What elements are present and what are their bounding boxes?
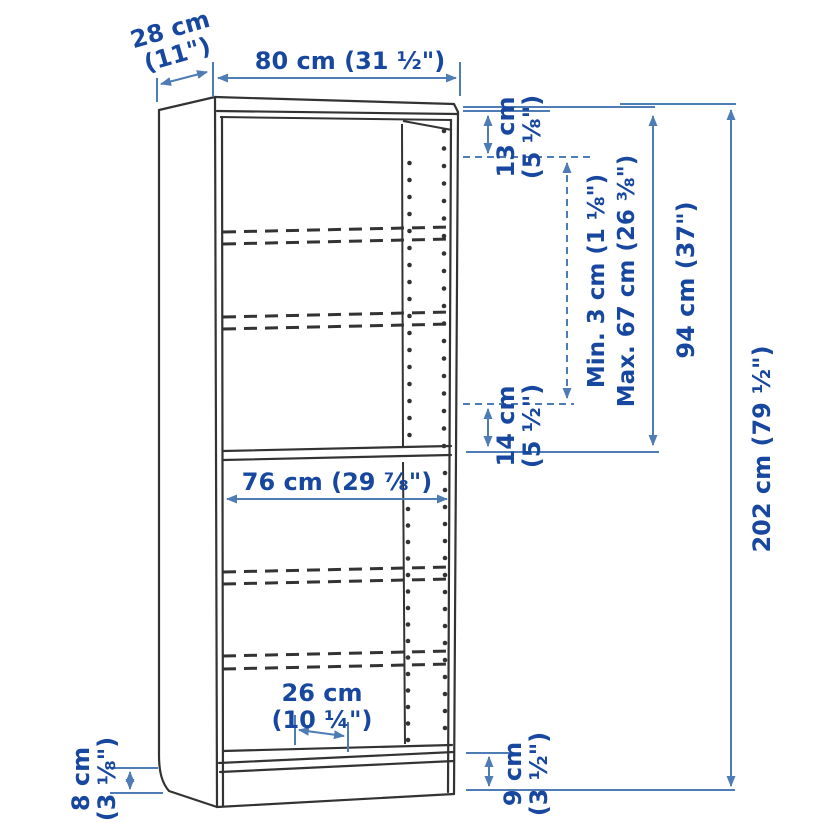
front-left-corner-edge (215, 97, 217, 807)
peg-hole-dot (406, 573, 411, 578)
peg-hole-dot (407, 314, 412, 319)
top-offset-label-line2: (5 ⅛") (518, 95, 546, 179)
shelf-adjust-max-label: Max. 67 cm (26 ⅜") (614, 155, 640, 407)
peg-hole-dot (443, 488, 448, 493)
width-label: 80 cm (31 ½") (255, 47, 445, 75)
top-right-interior-corner (403, 121, 452, 130)
dimension-annotations: 28 cm (11") 80 cm (31 ½") 13 cm (5 ⅛") M… (67, 5, 776, 821)
peg-hole-dot (406, 589, 411, 594)
top-panel-front-edge (217, 111, 458, 114)
peg-hole-dot (443, 505, 448, 510)
above-fixed-shelf-label: 14 cm (5 ½") (492, 384, 546, 468)
diagram-canvas: 28 cm (11") 80 cm (31 ½") 13 cm (5 ⅛") M… (0, 0, 840, 840)
peg-hole-dot (406, 606, 411, 611)
total-height-label-text: 202 cm (79 ½") (748, 345, 776, 552)
peg-hole-dot (443, 607, 448, 612)
peg-hole-dot (442, 339, 447, 344)
peg-hole-dot (407, 195, 412, 200)
peg-hole-dot (442, 146, 447, 151)
peg-hole-dot (443, 624, 448, 629)
bottom-shelf-back-edge (223, 745, 452, 751)
peg-hole-dot (406, 721, 411, 726)
peg-hole-dot (442, 199, 447, 204)
fixed-shelf-top-edge (223, 446, 451, 451)
peg-hole-dot (443, 539, 448, 544)
peg-hole-dot (406, 738, 411, 743)
peg-hole-dot (407, 246, 412, 251)
peg-hole-dot (442, 409, 447, 414)
peg-hole-dot (407, 382, 412, 387)
side-panel-top-edge (159, 97, 215, 110)
peg-hole-dot (407, 297, 412, 302)
shelf-depth-label-line1: 26 cm (282, 679, 363, 707)
peg-hole-dot (442, 374, 447, 379)
plinth-top-edge (220, 761, 454, 772)
adjustable-shelf-4 (223, 651, 451, 669)
peg-hole-dot (407, 433, 412, 438)
peg-hole-dot (406, 688, 411, 693)
fixed-shelf-front-edge (223, 455, 451, 460)
top-panel-back-edge (215, 97, 458, 112)
peg-hole-dot (442, 216, 447, 221)
depth-label: 28 cm (11") (127, 5, 220, 79)
peg-hole-dot (407, 161, 412, 166)
peg-hole-dot (442, 234, 447, 239)
peg-hole-dot (442, 444, 447, 449)
peg-hole-dot (407, 365, 412, 370)
base-front-label-line1: 9 cm (499, 742, 527, 806)
base-rear-label: 8 cm (3 ⅛") (67, 737, 121, 821)
peg-hole-dot (443, 471, 448, 476)
peg-hole-dot (443, 675, 448, 680)
top-panel-inner-edge (220, 117, 452, 120)
above-fixed-shelf-label-line1: 14 cm (492, 386, 520, 467)
peg-hole-dot (406, 540, 411, 545)
peg-hole-dot (407, 229, 412, 234)
shelf-adjust-label: Min. 3 cm (1 ⅛") Max. 67 cm (26 ⅜") (584, 155, 640, 407)
peg-hole-dot (406, 523, 411, 528)
peg-hole-dot (407, 399, 412, 404)
peg-hole-dot (406, 556, 411, 561)
shelf-adjust-min-label: Min. 3 cm (1 ⅛") (584, 174, 610, 388)
bookcase-dimension-diagram: 28 cm (11") 80 cm (31 ½") 13 cm (5 ⅛") M… (0, 0, 840, 840)
peg-hole-dot (407, 212, 412, 217)
back-right-corner-upper (402, 124, 403, 448)
peg-hole-dot (442, 426, 447, 431)
peg-hole-dot (442, 391, 447, 396)
base-front-label: 9 cm (3 ½") (499, 732, 553, 816)
total-height-label: 202 cm (79 ½") (748, 345, 776, 552)
peg-hole-dot (443, 556, 448, 561)
peg-hole-dot (443, 709, 448, 714)
peg-hole-dot (443, 726, 448, 731)
base-rear-label-line2: (3 ⅛") (93, 737, 121, 821)
right-outer-edge (454, 112, 458, 794)
upper-section-label: 94 cm (37") (672, 201, 700, 358)
peg-hole-dot (442, 251, 447, 256)
depth-arrow (161, 72, 207, 84)
bottom-edge (217, 794, 454, 807)
peg-hole-dot (407, 178, 412, 183)
peg-hole-dot (442, 304, 447, 309)
peg-hole-dot (407, 331, 412, 336)
peg-hole-dot (442, 181, 447, 186)
peg-hole-dot (407, 280, 412, 285)
peg-hole-dot (442, 356, 447, 361)
peg-hole-dot (407, 348, 412, 353)
peg-hole-dot (407, 263, 412, 268)
top-offset-label: 13 cm (5 ⅛") (492, 95, 546, 179)
peg-hole-dot (442, 269, 447, 274)
peg-hole-dot (406, 672, 411, 677)
peg-hole-dot (443, 658, 448, 663)
peg-hole-dot (443, 522, 448, 527)
upper-section-label-text: 94 cm (37") (672, 201, 700, 358)
peg-hole-dot (443, 590, 448, 595)
left-stile-inner-edge (222, 118, 223, 806)
peg-hole-dot (442, 286, 447, 291)
peg-hole-dot (443, 573, 448, 578)
peg-hole-dot (406, 639, 411, 644)
peg-hole-dot (442, 321, 447, 326)
bottom-shelf-front-edge (219, 752, 454, 763)
peg-hole-dot (406, 507, 411, 512)
side-panel-outer-edge-and-foot (159, 110, 217, 807)
peg-hole-dot (406, 655, 411, 660)
peg-hole-dot (443, 641, 448, 646)
inner-width-label: 76 cm (29 ⅞") (242, 468, 432, 496)
adjustable-shelf-2 (223, 312, 451, 329)
adjustable-shelf-1 (223, 227, 451, 244)
above-fixed-shelf-label-line2: (5 ½") (518, 384, 546, 468)
base-rear-label-line1: 8 cm (67, 747, 95, 811)
peg-hole-dot (442, 129, 447, 134)
back-right-corner-lower (403, 462, 405, 744)
adjustable-shelf-3 (223, 567, 451, 584)
peg-hole-dot (406, 705, 411, 710)
peg-hole-dot (407, 416, 412, 421)
base-front-label-line2: (3 ½") (525, 732, 553, 816)
shelf-depth-label-line2: (10 ¼") (271, 706, 372, 734)
top-offset-label-line1: 13 cm (492, 97, 520, 178)
peg-hole-dot (443, 692, 448, 697)
peg-hole-dot (406, 622, 411, 627)
peg-hole-dot (442, 164, 447, 169)
